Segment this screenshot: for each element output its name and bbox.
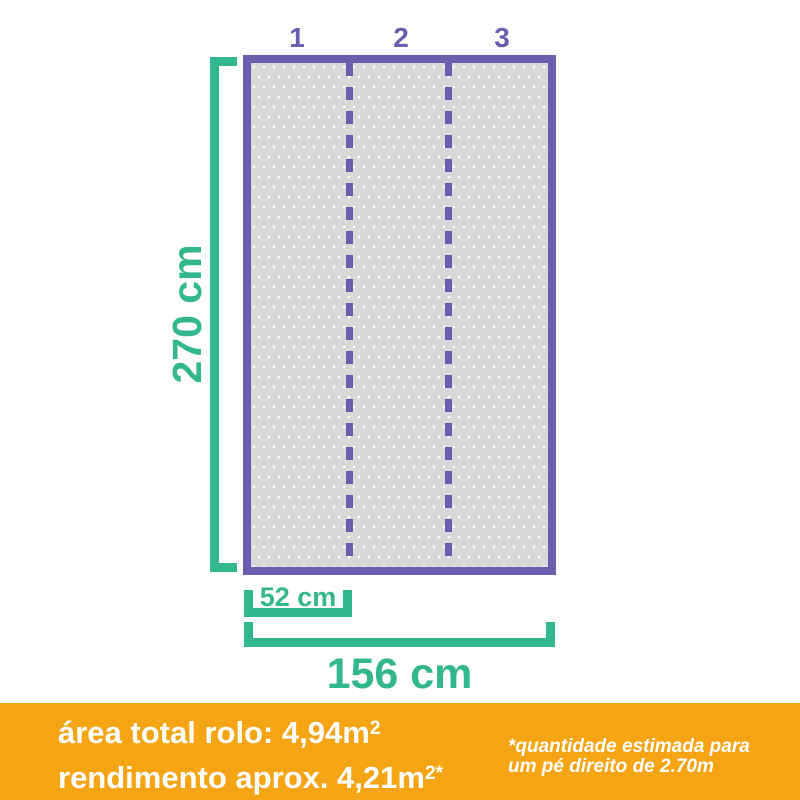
cut-line-2 <box>445 63 452 567</box>
total-roll-area-value: área total rolo: 4,94m <box>58 715 370 750</box>
approx-yield-superscript: 2* <box>425 763 443 784</box>
approx-yield-text: rendimento aprox. 4,21m2* <box>58 758 443 800</box>
footer-info-bar: área total rolo: 4,94m2 rendimento aprox… <box>0 703 800 800</box>
total-width-dimension-label: 156 cm <box>244 650 555 699</box>
height-dimension-bracket <box>210 57 237 572</box>
strip-width-dimension-label: 52 cm <box>244 582 352 613</box>
wallpaper-roll-yield-diagram: 1 2 3 270 cm 52 cm 156 cm área total rol… <box>0 0 800 800</box>
footnote-text: *quantidade estimada para um pé direito … <box>508 737 750 777</box>
total-roll-area-text: área total rolo: 4,94m2 <box>58 713 443 758</box>
strip-number-1: 1 <box>277 22 317 54</box>
footnote-line-2: um pé direito de 2.70m <box>508 757 750 777</box>
strip-number-3: 3 <box>482 22 522 54</box>
total-roll-area-superscript: 2 <box>370 718 381 739</box>
approx-yield-value: rendimento aprox. 4,21m <box>58 760 425 795</box>
footer-summary: área total rolo: 4,94m2 rendimento aprox… <box>58 713 443 800</box>
footnote-line-1: *quantidade estimada para <box>508 737 750 757</box>
wallpaper-roll <box>243 55 556 575</box>
cut-line-1 <box>346 63 353 567</box>
height-dimension-label: 270 cm <box>166 189 208 439</box>
strip-number-2: 2 <box>381 22 421 54</box>
total-width-dimension-bracket <box>244 622 555 647</box>
